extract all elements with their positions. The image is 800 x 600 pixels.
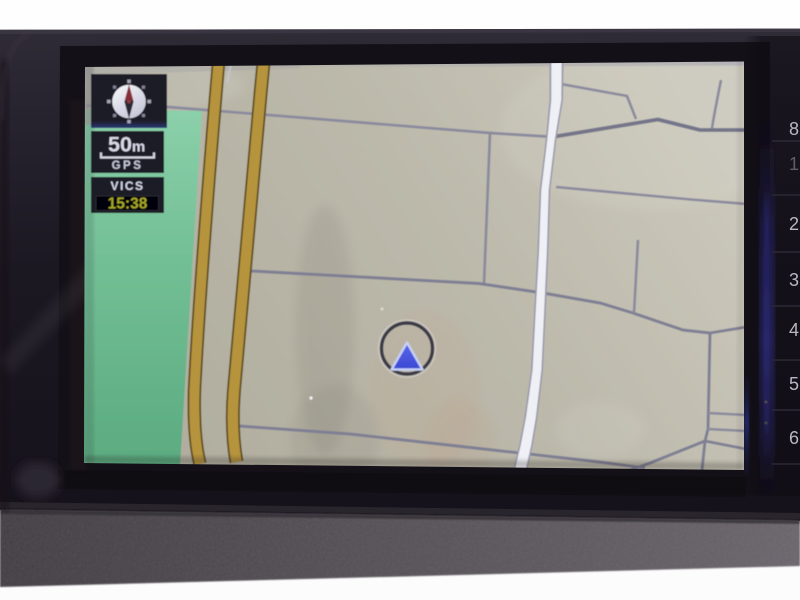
svg-text:3: 3: [789, 270, 799, 290]
svg-text:2: 2: [789, 214, 799, 234]
svg-text:5: 5: [789, 374, 799, 394]
svg-text:VICS: VICS: [110, 179, 144, 193]
svg-text:8: 8: [789, 119, 799, 139]
svg-text:6: 6: [789, 428, 799, 448]
svg-text:1: 1: [789, 154, 799, 174]
svg-text:4: 4: [789, 320, 799, 340]
svg-text:15:38: 15:38: [108, 196, 148, 213]
svg-text:GPS: GPS: [112, 160, 144, 172]
